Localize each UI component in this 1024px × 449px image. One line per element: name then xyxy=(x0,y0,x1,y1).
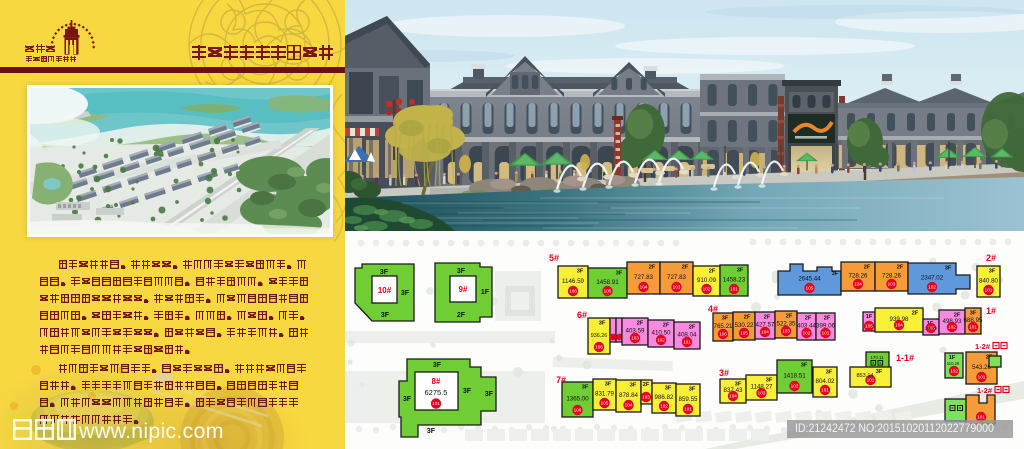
svg-text:840.80: 840.80 xyxy=(979,278,998,285)
svg-text:2F: 2F xyxy=(643,382,650,388)
svg-text:1F: 1F xyxy=(481,289,490,296)
svg-text:105: 105 xyxy=(865,324,873,329)
svg-text:104: 104 xyxy=(761,330,769,335)
svg-text:3F: 3F xyxy=(630,383,637,389)
svg-text:102: 102 xyxy=(791,384,799,389)
svg-text:3F: 3F xyxy=(945,266,952,272)
svg-text:2F: 2F xyxy=(637,321,644,327)
svg-text:1-2#: 1-2# xyxy=(977,386,993,395)
svg-text:3F: 3F xyxy=(826,370,833,376)
svg-text:1-2#: 1-2# xyxy=(975,342,991,351)
svg-text:2F: 2F xyxy=(663,323,670,329)
svg-text:2645.44: 2645.44 xyxy=(798,276,821,283)
svg-text:2347.02: 2347.02 xyxy=(921,275,944,282)
svg-text:1418.51: 1418.51 xyxy=(783,373,806,380)
svg-text:3F: 3F xyxy=(876,369,883,375)
svg-text:728.26: 728.26 xyxy=(849,273,868,280)
svg-text:139.73: 139.73 xyxy=(925,326,938,331)
svg-text:1365.00: 1365.00 xyxy=(566,396,589,403)
svg-text:103: 103 xyxy=(631,336,639,341)
svg-text:3F: 3F xyxy=(485,391,494,398)
svg-text:3#: 3# xyxy=(719,368,729,378)
svg-text:3F: 3F xyxy=(599,321,606,327)
svg-text:1458.23: 1458.23 xyxy=(723,277,746,284)
svg-text:3F: 3F xyxy=(380,269,389,276)
svg-text:3F: 3F xyxy=(605,382,612,388)
svg-text:105: 105 xyxy=(604,289,612,294)
svg-text:2F: 2F xyxy=(709,269,716,275)
svg-text:103: 103 xyxy=(673,285,681,290)
svg-text:102: 102 xyxy=(803,331,811,336)
svg-text:105: 105 xyxy=(806,286,814,291)
svg-text:3F: 3F xyxy=(989,269,996,275)
svg-text:5#: 5# xyxy=(549,253,559,263)
svg-text:3F: 3F xyxy=(401,290,410,297)
svg-text:101: 101 xyxy=(969,325,977,330)
svg-text:106: 106 xyxy=(569,289,577,294)
svg-text:853.14: 853.14 xyxy=(856,373,873,379)
svg-text:1#: 1# xyxy=(986,306,996,316)
svg-text:103: 103 xyxy=(782,329,790,334)
svg-text:10#: 10# xyxy=(378,286,392,295)
svg-text:101: 101 xyxy=(985,288,993,293)
svg-text:104: 104 xyxy=(895,323,903,328)
svg-text:3F: 3F xyxy=(433,362,442,369)
svg-text:728.26: 728.26 xyxy=(882,273,901,280)
svg-text:102: 102 xyxy=(950,369,958,374)
svg-text:3F: 3F xyxy=(970,311,977,317)
svg-text:986.82: 986.82 xyxy=(655,394,674,401)
svg-text:2F: 2F xyxy=(805,316,812,322)
svg-text:106: 106 xyxy=(595,345,603,350)
svg-text:101: 101 xyxy=(684,407,692,412)
svg-text:3F: 3F xyxy=(737,268,744,274)
svg-text:102: 102 xyxy=(657,338,665,343)
svg-text:3F: 3F xyxy=(403,396,412,403)
svg-text:110.29: 110.29 xyxy=(947,361,960,366)
svg-text:170.11: 170.11 xyxy=(870,355,884,360)
svg-text:3F: 3F xyxy=(427,428,436,435)
svg-text:101: 101 xyxy=(977,415,985,420)
svg-text:2F: 2F xyxy=(764,315,771,321)
svg-text:106: 106 xyxy=(574,408,582,413)
svg-text:103: 103 xyxy=(758,391,766,396)
svg-text:101: 101 xyxy=(978,375,986,380)
svg-text:878.84: 878.84 xyxy=(619,392,638,399)
svg-text:104: 104 xyxy=(625,403,633,408)
svg-text:104: 104 xyxy=(854,282,862,287)
svg-text:102: 102 xyxy=(660,404,668,409)
svg-text:3F: 3F xyxy=(577,269,584,275)
svg-text:103: 103 xyxy=(642,395,650,400)
svg-text:3F: 3F xyxy=(665,386,672,392)
svg-text:1458.91: 1458.91 xyxy=(596,279,619,286)
svg-text:101: 101 xyxy=(821,388,829,393)
svg-text:3F: 3F xyxy=(616,271,623,277)
svg-text:106: 106 xyxy=(719,332,727,337)
svg-text:101: 101 xyxy=(432,401,440,406)
svg-text:101: 101 xyxy=(822,331,830,336)
svg-text:105: 105 xyxy=(740,331,748,336)
svg-text:2F: 2F xyxy=(689,325,696,331)
svg-text:2F: 2F xyxy=(649,265,656,271)
svg-text:3F: 3F xyxy=(689,387,696,393)
svg-text:1146.59: 1146.59 xyxy=(562,278,584,285)
svg-text:2F: 2F xyxy=(912,311,919,317)
svg-text:2F: 2F xyxy=(682,265,689,271)
svg-text:3F: 3F xyxy=(381,312,390,319)
svg-text:102: 102 xyxy=(703,287,711,292)
svg-text:859.55: 859.55 xyxy=(679,396,698,403)
svg-text:104: 104 xyxy=(729,394,737,399)
svg-text:936.26: 936.26 xyxy=(591,333,608,339)
svg-text:2F: 2F xyxy=(824,316,831,322)
svg-text:910.09: 910.09 xyxy=(697,277,716,284)
svg-text:2F: 2F xyxy=(744,315,751,321)
svg-text:6#: 6# xyxy=(577,310,587,320)
svg-text:104: 104 xyxy=(640,285,648,290)
svg-text:727.83: 727.83 xyxy=(667,274,686,281)
svg-text:101: 101 xyxy=(683,340,691,345)
svg-text:3F: 3F xyxy=(801,363,808,369)
svg-text:102: 102 xyxy=(928,285,936,290)
svg-text:8#: 8# xyxy=(432,377,441,386)
svg-text:831.79: 831.79 xyxy=(595,391,614,398)
svg-text:103: 103 xyxy=(888,282,896,287)
svg-text:1-1#: 1-1# xyxy=(896,353,914,363)
svg-text:1F: 1F xyxy=(866,314,873,320)
svg-text:2F: 2F xyxy=(864,265,871,271)
svg-text:9#: 9# xyxy=(459,285,468,294)
svg-text:3F: 3F xyxy=(582,385,589,391)
svg-text:2F: 2F xyxy=(786,314,793,320)
svg-text:3F: 3F xyxy=(722,316,729,322)
svg-text:804.02: 804.02 xyxy=(816,378,835,385)
svg-text:2#: 2# xyxy=(986,253,996,263)
svg-text:3F: 3F xyxy=(457,268,466,275)
svg-text:2F: 2F xyxy=(457,312,466,319)
svg-text:727.83: 727.83 xyxy=(634,274,653,281)
svg-text:3F: 3F xyxy=(463,388,472,395)
svg-text:2F: 2F xyxy=(897,265,904,271)
svg-text:3F: 3F xyxy=(832,271,839,277)
svg-text:101: 101 xyxy=(730,287,738,292)
svg-text:102: 102 xyxy=(948,325,956,330)
svg-text:105: 105 xyxy=(601,401,609,406)
svg-text:6275.5: 6275.5 xyxy=(425,388,448,397)
